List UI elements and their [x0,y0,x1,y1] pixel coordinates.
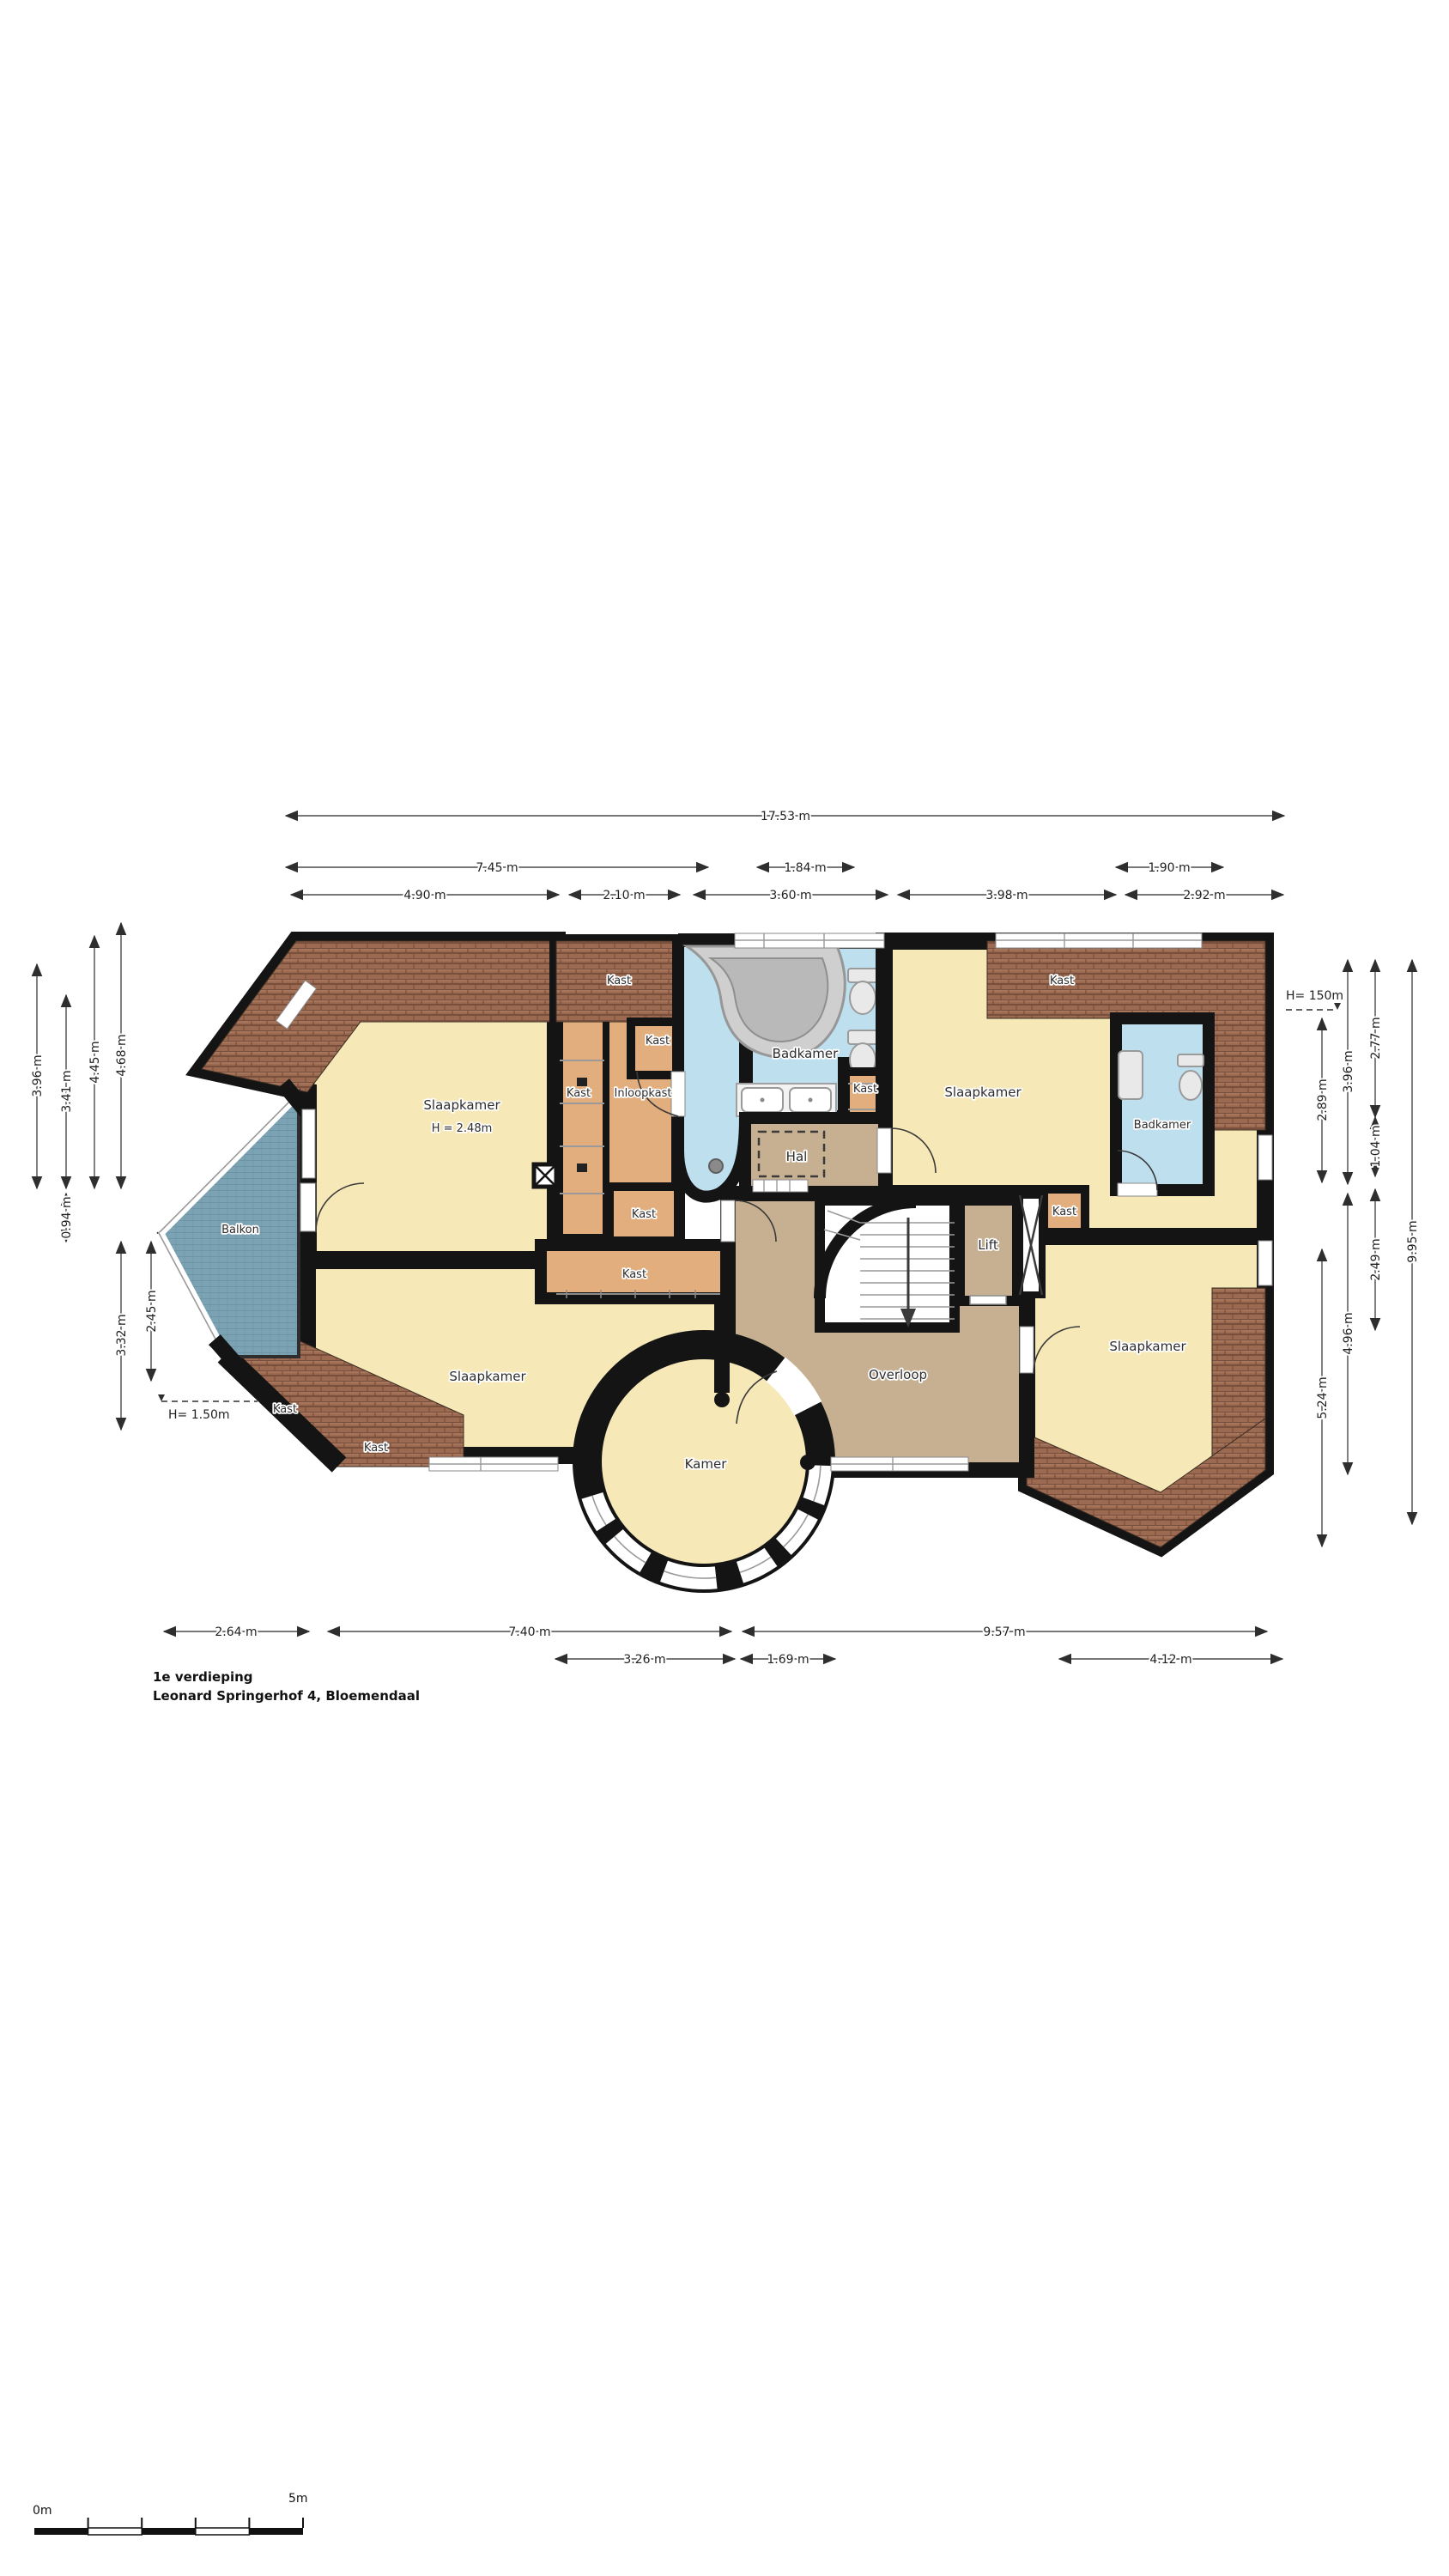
label-kast-roof-nw: Kast [607,975,631,987]
dim-264: 2.64 m [215,1625,257,1639]
building [159,941,1265,1590]
dim-r-995: 9.95 m [1406,1220,1420,1262]
label-kast-top-small: Kast [646,1035,670,1048]
height-note-left: H= 1.50m [168,1408,230,1422]
label-balkon: Balkon [221,1224,259,1236]
label-hal: Hal [786,1149,808,1164]
lift-door [970,1296,1006,1304]
dim-r-249: 2.49 m [1369,1238,1383,1280]
floorplan-canvas: Slaapkamer H = 2.48m Slaapkamer Slaapkam… [0,0,1449,2576]
label-kamer: Kamer [685,1456,728,1472]
room-badkamer-east [1116,1018,1209,1190]
dim-326: 3.26 m [623,1653,665,1667]
dim-r-496: 4.96 m [1342,1312,1355,1354]
label-lift: Lift [978,1237,998,1253]
label-kast-roof-sw-upper: Kast [273,1403,297,1416]
scale-start-label: 0m [33,2504,52,2518]
dim-745: 7.45 m [476,861,518,875]
dim-l-341: 3.41 m [60,1070,74,1112]
label-inloopkast: Inloopkast [615,1087,672,1100]
label-kast-strip-sw: Kast [622,1268,646,1281]
label-slaapkamer-sw: Slaapkamer [449,1369,526,1384]
dim-r-396: 3.96 m [1342,1050,1355,1092]
dim-184: 1.84 m [784,861,826,875]
scale-end-label: 5m [288,2492,308,2506]
dim-l-396: 3.96 m [31,1054,45,1097]
scale-bar: 0m 5m [33,2492,308,2535]
vent-box-icon [534,1164,556,1187]
dim-l-332: 3.32 m [115,1314,129,1356]
dim-top-total: 17.53 m [761,810,810,823]
dim-r-104: 1.04 m [1369,1125,1383,1167]
room-kast-top-small [631,1022,678,1075]
label-slaapkamer-se: Slaapkamer [1109,1339,1186,1354]
label-kast-below-inloopkast: Kast [632,1208,656,1221]
washbasin-icon [737,1084,836,1116]
dim-r-524: 5.24 m [1316,1376,1330,1419]
dim-360: 3.60 m [769,889,811,902]
stairwell [820,1200,955,1327]
label-kast-east: Kast [853,1083,877,1096]
label-badkamer-main: Badkamer [773,1046,839,1061]
dim-l-468: 4.68 m [115,1034,129,1076]
dim-l-094: 0.94 m [60,1196,74,1238]
dim-r-289: 2.89 m [1316,1078,1330,1121]
label-kast-roof-ne: Kast [1050,975,1074,987]
dim-r-277: 2.77 m [1369,1017,1383,1059]
dim-169: 1.69 m [767,1653,809,1667]
label-slaapkamer-nw-height: H = 2.48m [432,1122,493,1135]
label-kast-left-strip: Kast [567,1087,591,1100]
dim-292: 2.92 m [1183,889,1225,902]
dim-740: 7.40 m [508,1625,550,1639]
height-note-right: H= 150m [1286,989,1343,1003]
kamer-post-1 [714,1392,730,1407]
dim-490: 4.90 m [403,889,446,902]
dim-l-445: 4.45 m [88,1041,102,1083]
label-slaapkamer-ne: Slaapkamer [944,1084,1022,1100]
dim-190: 1.90 m [1148,861,1190,875]
title-block: 1e verdieping Leonard Springerhof 4, Blo… [153,1669,420,1704]
shower-drain-icon [709,1159,723,1173]
dim-412: 4.12 m [1149,1653,1191,1667]
dim-957: 9.57 m [983,1625,1025,1639]
dim-210: 2.10 m [603,889,645,902]
label-badkamer-east: Badkamer [1134,1119,1191,1132]
address-title: Leonard Springerhof 4, Bloemendaal [153,1688,420,1704]
label-kast-roof-sw-lower: Kast [364,1442,388,1455]
dim-l-245: 2.45 m [145,1290,159,1332]
floorplan-page: { "header": { "floor_title": "1e verdiep… [0,0,1449,2576]
label-kast-se-small: Kast [1052,1206,1076,1218]
label-slaapkamer-nw: Slaapkamer [423,1097,500,1113]
kamer-post-2 [800,1455,815,1470]
label-overloop: Overloop [869,1367,927,1382]
floor-title: 1e verdieping [153,1669,253,1685]
dim-398: 3.98 m [985,889,1028,902]
